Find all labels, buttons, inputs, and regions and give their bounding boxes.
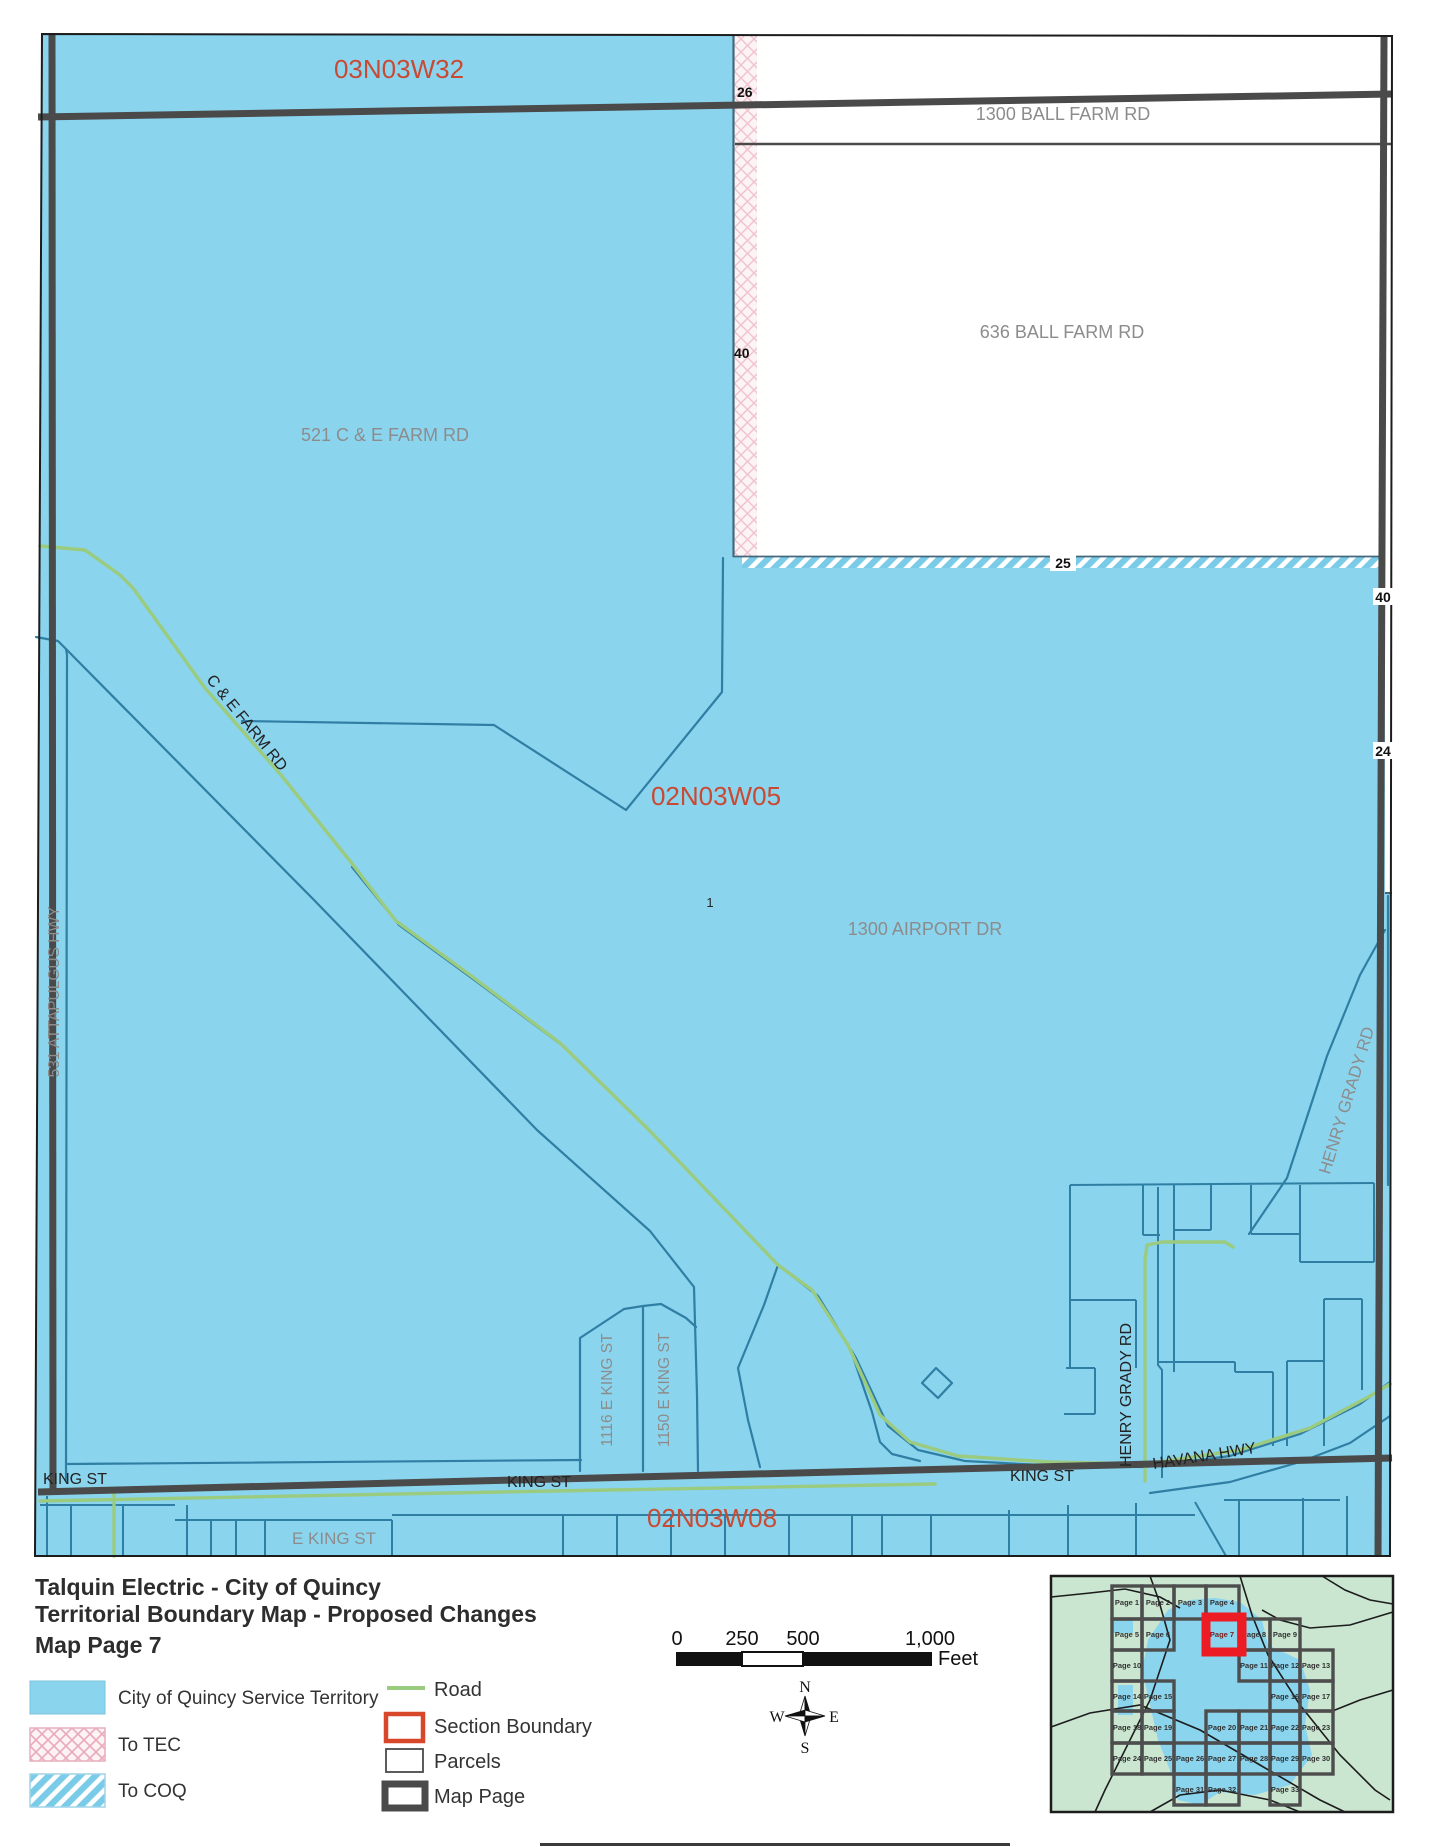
svg-text:Page 6: Page 6 [1146,1630,1170,1639]
svg-text:To COQ: To COQ [118,1781,187,1802]
svg-text:Territorial Boundary Map - Pro: Territorial Boundary Map - Proposed Chan… [35,1601,537,1627]
svg-text:1300 BALL FARM RD: 1300 BALL FARM RD [976,104,1150,124]
svg-text:1300 AIRPORT DR: 1300 AIRPORT DR [848,919,1002,939]
svg-text:Page 31: Page 31 [1176,1785,1204,1794]
svg-text:Page 25: Page 25 [1144,1754,1172,1763]
svg-text:Page 9: Page 9 [1273,1630,1297,1639]
svg-text:26: 26 [737,84,753,100]
svg-text:Page 23: Page 23 [1302,1723,1330,1732]
svg-text:Page 1: Page 1 [1115,1598,1139,1607]
svg-text:To TEC: To TEC [118,1735,181,1756]
svg-text:Page 22: Page 22 [1271,1723,1299,1732]
svg-text:1116 E KING ST: 1116 E KING ST [599,1333,616,1447]
svg-text:531 ATTAPULGUS HWY: 531 ATTAPULGUS HWY [46,907,63,1078]
svg-text:Page 32: Page 32 [1208,1785,1236,1794]
svg-text:0: 0 [671,1628,682,1650]
svg-text:N: N [799,1679,811,1696]
svg-text:Page 7: Page 7 [1210,1630,1234,1639]
svg-text:Page 24: Page 24 [1113,1754,1142,1763]
svg-text:1150 E KING ST: 1150 E KING ST [656,1332,673,1447]
svg-text:Parcels: Parcels [434,1751,501,1773]
svg-text:250: 250 [725,1628,758,1650]
svg-text:W: W [769,1709,785,1726]
svg-text:KING ST: KING ST [1010,1468,1074,1485]
svg-text:Page 15: Page 15 [1144,1692,1172,1701]
svg-text:Page 13: Page 13 [1302,1661,1330,1670]
svg-text:City of Quincy Service Territo: City of Quincy Service Territory [118,1688,379,1709]
svg-text:Page 14: Page 14 [1113,1692,1142,1701]
svg-text:40: 40 [734,345,750,361]
svg-text:Page 11: Page 11 [1240,1661,1268,1670]
svg-text:Page 33: Page 33 [1271,1785,1299,1794]
svg-text:521 C & E FARM RD: 521 C & E FARM RD [301,425,469,445]
svg-text:Page 21: Page 21 [1240,1723,1268,1732]
svg-text:Page 18: Page 18 [1113,1723,1141,1732]
svg-text:E: E [829,1709,839,1726]
svg-text:Map Page 7: Map Page 7 [35,1632,162,1658]
svg-text:Page 17: Page 17 [1302,1692,1330,1701]
svg-text:Page 29: Page 29 [1271,1754,1299,1763]
svg-text:02N03W08: 02N03W08 [647,1503,777,1533]
svg-text:1,000: 1,000 [905,1628,955,1650]
svg-text:KING ST: KING ST [43,1471,107,1488]
svg-text:02N03W05: 02N03W05 [651,781,781,811]
svg-text:24: 24 [1375,743,1391,759]
svg-text:40: 40 [1375,589,1391,605]
svg-text:Page 27: Page 27 [1208,1754,1236,1763]
svg-text:Section Boundary: Section Boundary [434,1716,592,1738]
svg-text:Feet: Feet [938,1648,978,1670]
svg-text:Talquin Electric - City of Qui: Talquin Electric - City of Quincy [35,1574,381,1600]
svg-text:25: 25 [1055,555,1071,571]
svg-text:Page 12: Page 12 [1271,1661,1299,1670]
svg-text:636 BALL FARM RD: 636 BALL FARM RD [980,322,1144,342]
svg-text:Page 30: Page 30 [1302,1754,1330,1763]
svg-text:KING ST: KING ST [507,1474,571,1491]
svg-text:Page 28: Page 28 [1240,1754,1268,1763]
svg-text:Page 26: Page 26 [1176,1754,1204,1763]
svg-text:Page 19: Page 19 [1144,1723,1172,1732]
svg-text:E KING ST: E KING ST [292,1529,376,1548]
svg-text:HENRY GRADY RD: HENRY GRADY RD [1118,1323,1135,1467]
svg-text:Page 2: Page 2 [1146,1598,1170,1607]
svg-text:S: S [801,1740,810,1757]
svg-text:Page 10: Page 10 [1113,1661,1141,1670]
svg-text:500: 500 [786,1628,819,1650]
svg-text:Page 5: Page 5 [1115,1630,1139,1639]
svg-text:1: 1 [706,895,713,910]
svg-text:Page 20: Page 20 [1208,1723,1236,1732]
svg-text:Map Page: Map Page [434,1786,525,1808]
svg-text:Road: Road [434,1679,482,1701]
svg-text:Page 4: Page 4 [1210,1598,1235,1607]
svg-text:Page 3: Page 3 [1178,1598,1202,1607]
svg-text:03N03W32: 03N03W32 [334,54,464,84]
svg-text:Page 16: Page 16 [1271,1692,1299,1701]
